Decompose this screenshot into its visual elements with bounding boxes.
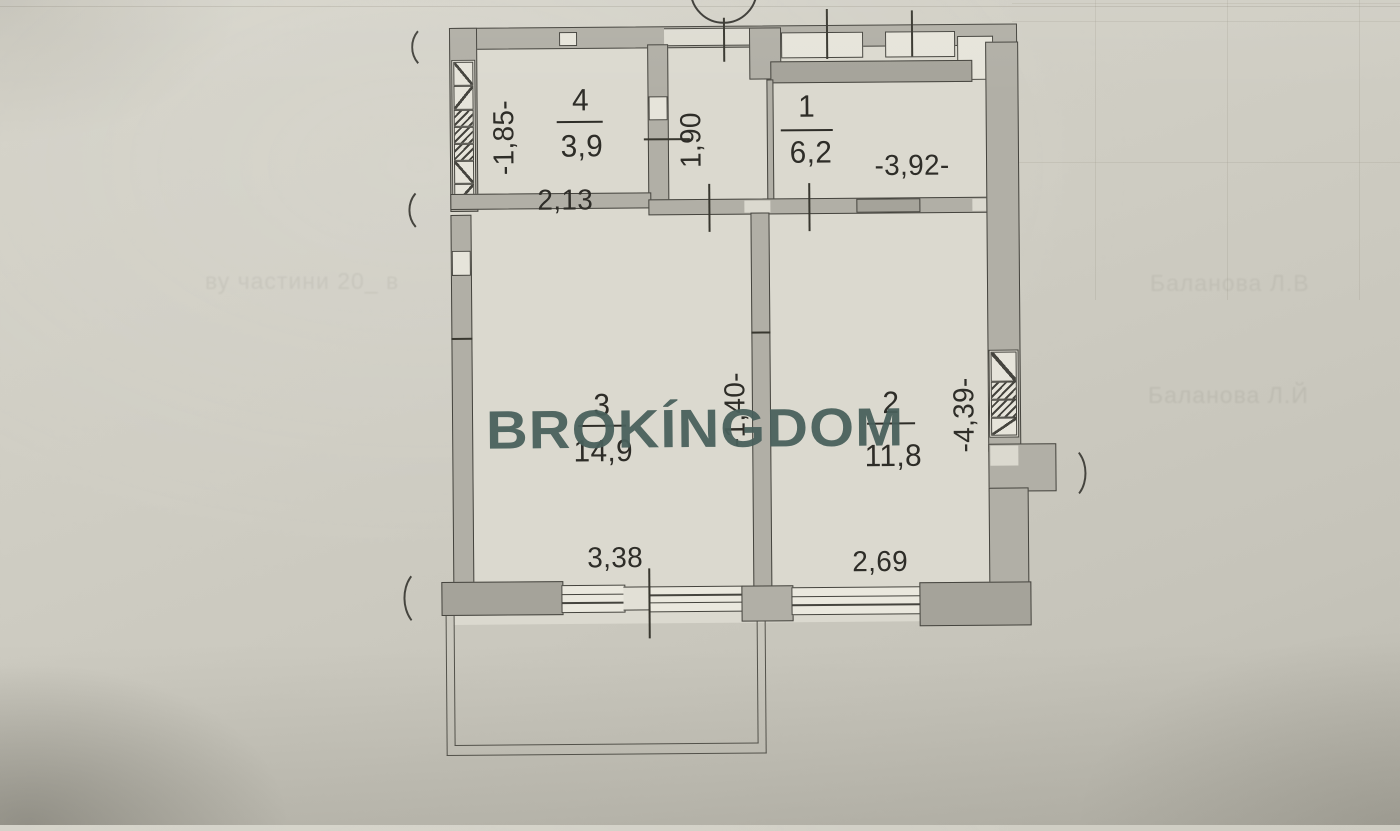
dim-room4-depth: -1,85- <box>490 100 520 175</box>
dimension-tick <box>708 184 710 232</box>
bottom-right-corner-wall <box>919 581 1031 626</box>
top-wall-niche <box>559 32 577 46</box>
middle-wall-dark-segment <box>856 198 920 213</box>
room4-right-wall <box>647 44 669 202</box>
room4-number: 4 <box>572 84 589 115</box>
dim-room3-width: 3,38 <box>587 544 643 573</box>
entrance-recess <box>990 446 1018 466</box>
room1-top-cell <box>781 32 863 59</box>
shaft-cell-hatched <box>454 127 474 144</box>
room4-area: 3,9 <box>561 130 604 161</box>
axis-line <box>723 18 725 62</box>
top-wall-opening <box>664 28 758 47</box>
neighbor-door-arc <box>403 568 445 628</box>
room1-top-cell <box>885 31 955 58</box>
dim-room2-width: 2,69 <box>852 548 908 577</box>
neighbor-door-arc <box>411 24 451 70</box>
vent-shaft-left <box>451 60 476 208</box>
bottom-wall-segment <box>441 581 563 616</box>
apartment-interior <box>449 24 1022 624</box>
hall-partition-wall <box>766 79 774 201</box>
shaft-cell-hatched <box>454 144 474 161</box>
room1-number: 1 <box>798 91 815 122</box>
bottom-wall-pier <box>741 585 793 621</box>
window <box>649 586 743 613</box>
left-wall-cell <box>452 251 471 276</box>
dimension-tick <box>911 10 913 56</box>
dim-hall-width: 1,90 <box>677 112 706 168</box>
wall-joint-line <box>751 331 770 333</box>
shaft-cell-diagonal <box>991 418 1017 436</box>
room1-underline <box>781 129 833 131</box>
wall-joint-line <box>451 338 472 340</box>
window <box>561 585 625 614</box>
entrance-door-arc <box>1046 445 1086 501</box>
shaft-cell-hatched <box>454 110 474 127</box>
room4-underline <box>557 121 603 123</box>
neighbor-door-arc <box>408 186 450 234</box>
shaft-cell-diagonal <box>454 161 474 184</box>
middle-wall <box>648 196 1018 215</box>
shaft-cell-hatched <box>991 400 1017 418</box>
middle-wall-notch <box>972 199 986 211</box>
balcony-outline-inner <box>454 612 759 746</box>
floorplan-drawing: 4 3,9 2,13 -1,85- 1,90 1 6,2 -3,92- 3 14… <box>0 0 1400 830</box>
shaft-cell-hatched <box>991 382 1017 400</box>
balcony-door-opening <box>623 586 651 610</box>
dimension-tick <box>808 183 810 231</box>
window <box>791 586 921 615</box>
dim-room4-width: 2,13 <box>537 186 593 215</box>
dimension-tick <box>826 9 828 59</box>
dim-room2-depth: -4,39- <box>950 377 980 452</box>
shaft-cell-diagonal <box>991 352 1017 382</box>
room4-door-opening <box>649 96 668 120</box>
dim-room1-width: -3,92- <box>874 152 949 182</box>
scanned-floorplan-page: ву частини 20_ в Силав женовн Баланова Л… <box>0 0 1400 825</box>
brokingdom-watermark: BROKÍNGDOM <box>486 396 905 461</box>
vent-shaft-right <box>989 349 1020 437</box>
room1-inner-band <box>770 60 972 84</box>
shaft-cell-diagonal <box>453 62 473 86</box>
middle-wall-opening <box>744 200 770 212</box>
room1-area: 6,2 <box>790 136 833 167</box>
shaft-cell-diagonal <box>453 86 473 110</box>
